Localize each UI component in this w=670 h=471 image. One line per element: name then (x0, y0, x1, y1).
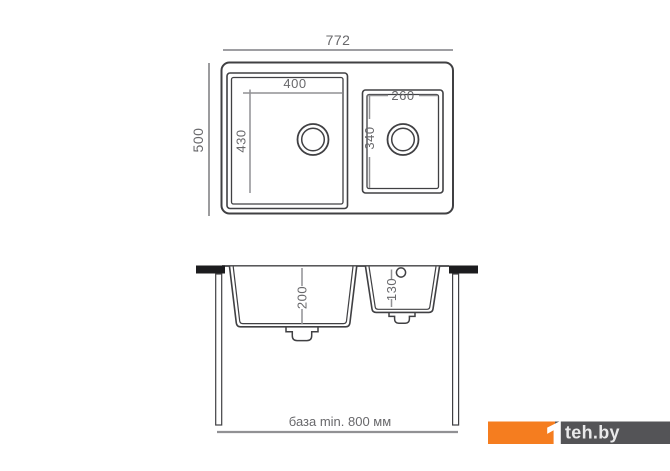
section-view: 200 130 база min. 800 мм (196, 266, 478, 433)
cabinet-leg-right (453, 274, 459, 425)
dim-main-bowl-section-depth-label: 200 (295, 286, 310, 309)
top-view: 772 500 400 430 260 340 (190, 32, 453, 216)
dim-overall-depth-label: 500 (190, 128, 206, 153)
watermark-logo: teh.by (488, 421, 670, 444)
sink-dimension-screenshot: 772 500 400 430 260 340 (0, 0, 670, 471)
cabinet-leg-left (216, 274, 222, 425)
dim-second-bowl-width-label: 260 (391, 88, 414, 103)
dim-main-bowl-depth-label: 430 (234, 129, 249, 152)
countertop-right (449, 266, 478, 274)
logo-orange-block (488, 422, 555, 445)
logo-brand-text: teh.by (565, 423, 620, 443)
overflow-hole (396, 268, 405, 277)
main-bowl-section-outer (230, 267, 357, 327)
dim-overall-width-label: 772 (326, 32, 351, 48)
cabinet-base-label: база min. 800 мм (289, 414, 391, 429)
dim-second-bowl-section-depth-label: 130 (384, 278, 399, 301)
dim-main-bowl-width-label: 400 (283, 76, 306, 91)
second-bowl-drain-fitting (389, 313, 415, 324)
dim-second-bowl-depth-label: 340 (362, 126, 377, 149)
main-bowl-drain-fitting (286, 327, 318, 341)
sink-technical-drawing: 772 500 400 430 260 340 (0, 0, 670, 471)
countertop-left (196, 266, 225, 274)
